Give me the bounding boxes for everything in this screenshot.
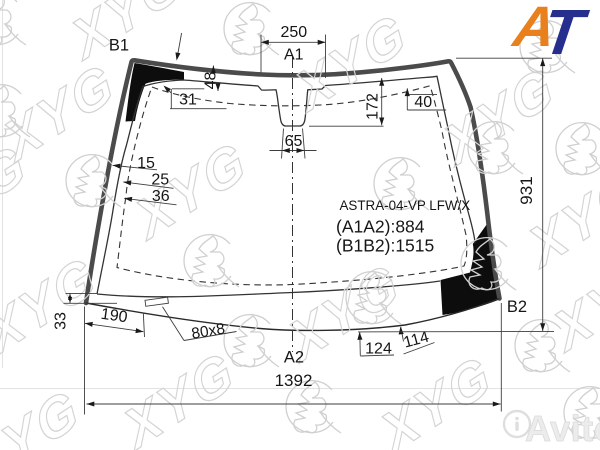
- svg-text:172: 172: [365, 93, 382, 120]
- svg-text:ASTRA-04-VP LFW/X: ASTRA-04-VP LFW/X: [340, 198, 471, 213]
- svg-text:1392: 1392: [275, 371, 313, 390]
- svg-text:Avito: Avito: [525, 408, 600, 449]
- svg-text:36: 36: [152, 188, 170, 205]
- svg-text:40: 40: [414, 94, 432, 111]
- svg-text:33: 33: [53, 312, 70, 330]
- svg-text:250: 250: [280, 24, 307, 41]
- svg-text:65: 65: [285, 133, 303, 150]
- svg-text:25: 25: [151, 172, 169, 189]
- svg-text:B2: B2: [507, 298, 527, 316]
- svg-text:(B1B2):1515: (B1B2):1515: [336, 236, 434, 256]
- svg-text:B1: B1: [109, 37, 129, 55]
- svg-text:A2: A2: [284, 349, 304, 367]
- svg-text:(A1A2):884: (A1A2):884: [336, 217, 425, 237]
- svg-text:48: 48: [203, 72, 220, 90]
- svg-text:931: 931: [517, 176, 536, 204]
- svg-text:A1: A1: [284, 47, 304, 64]
- svg-text:124: 124: [365, 341, 392, 358]
- svg-text:15: 15: [137, 155, 155, 172]
- svg-text:31: 31: [179, 92, 197, 109]
